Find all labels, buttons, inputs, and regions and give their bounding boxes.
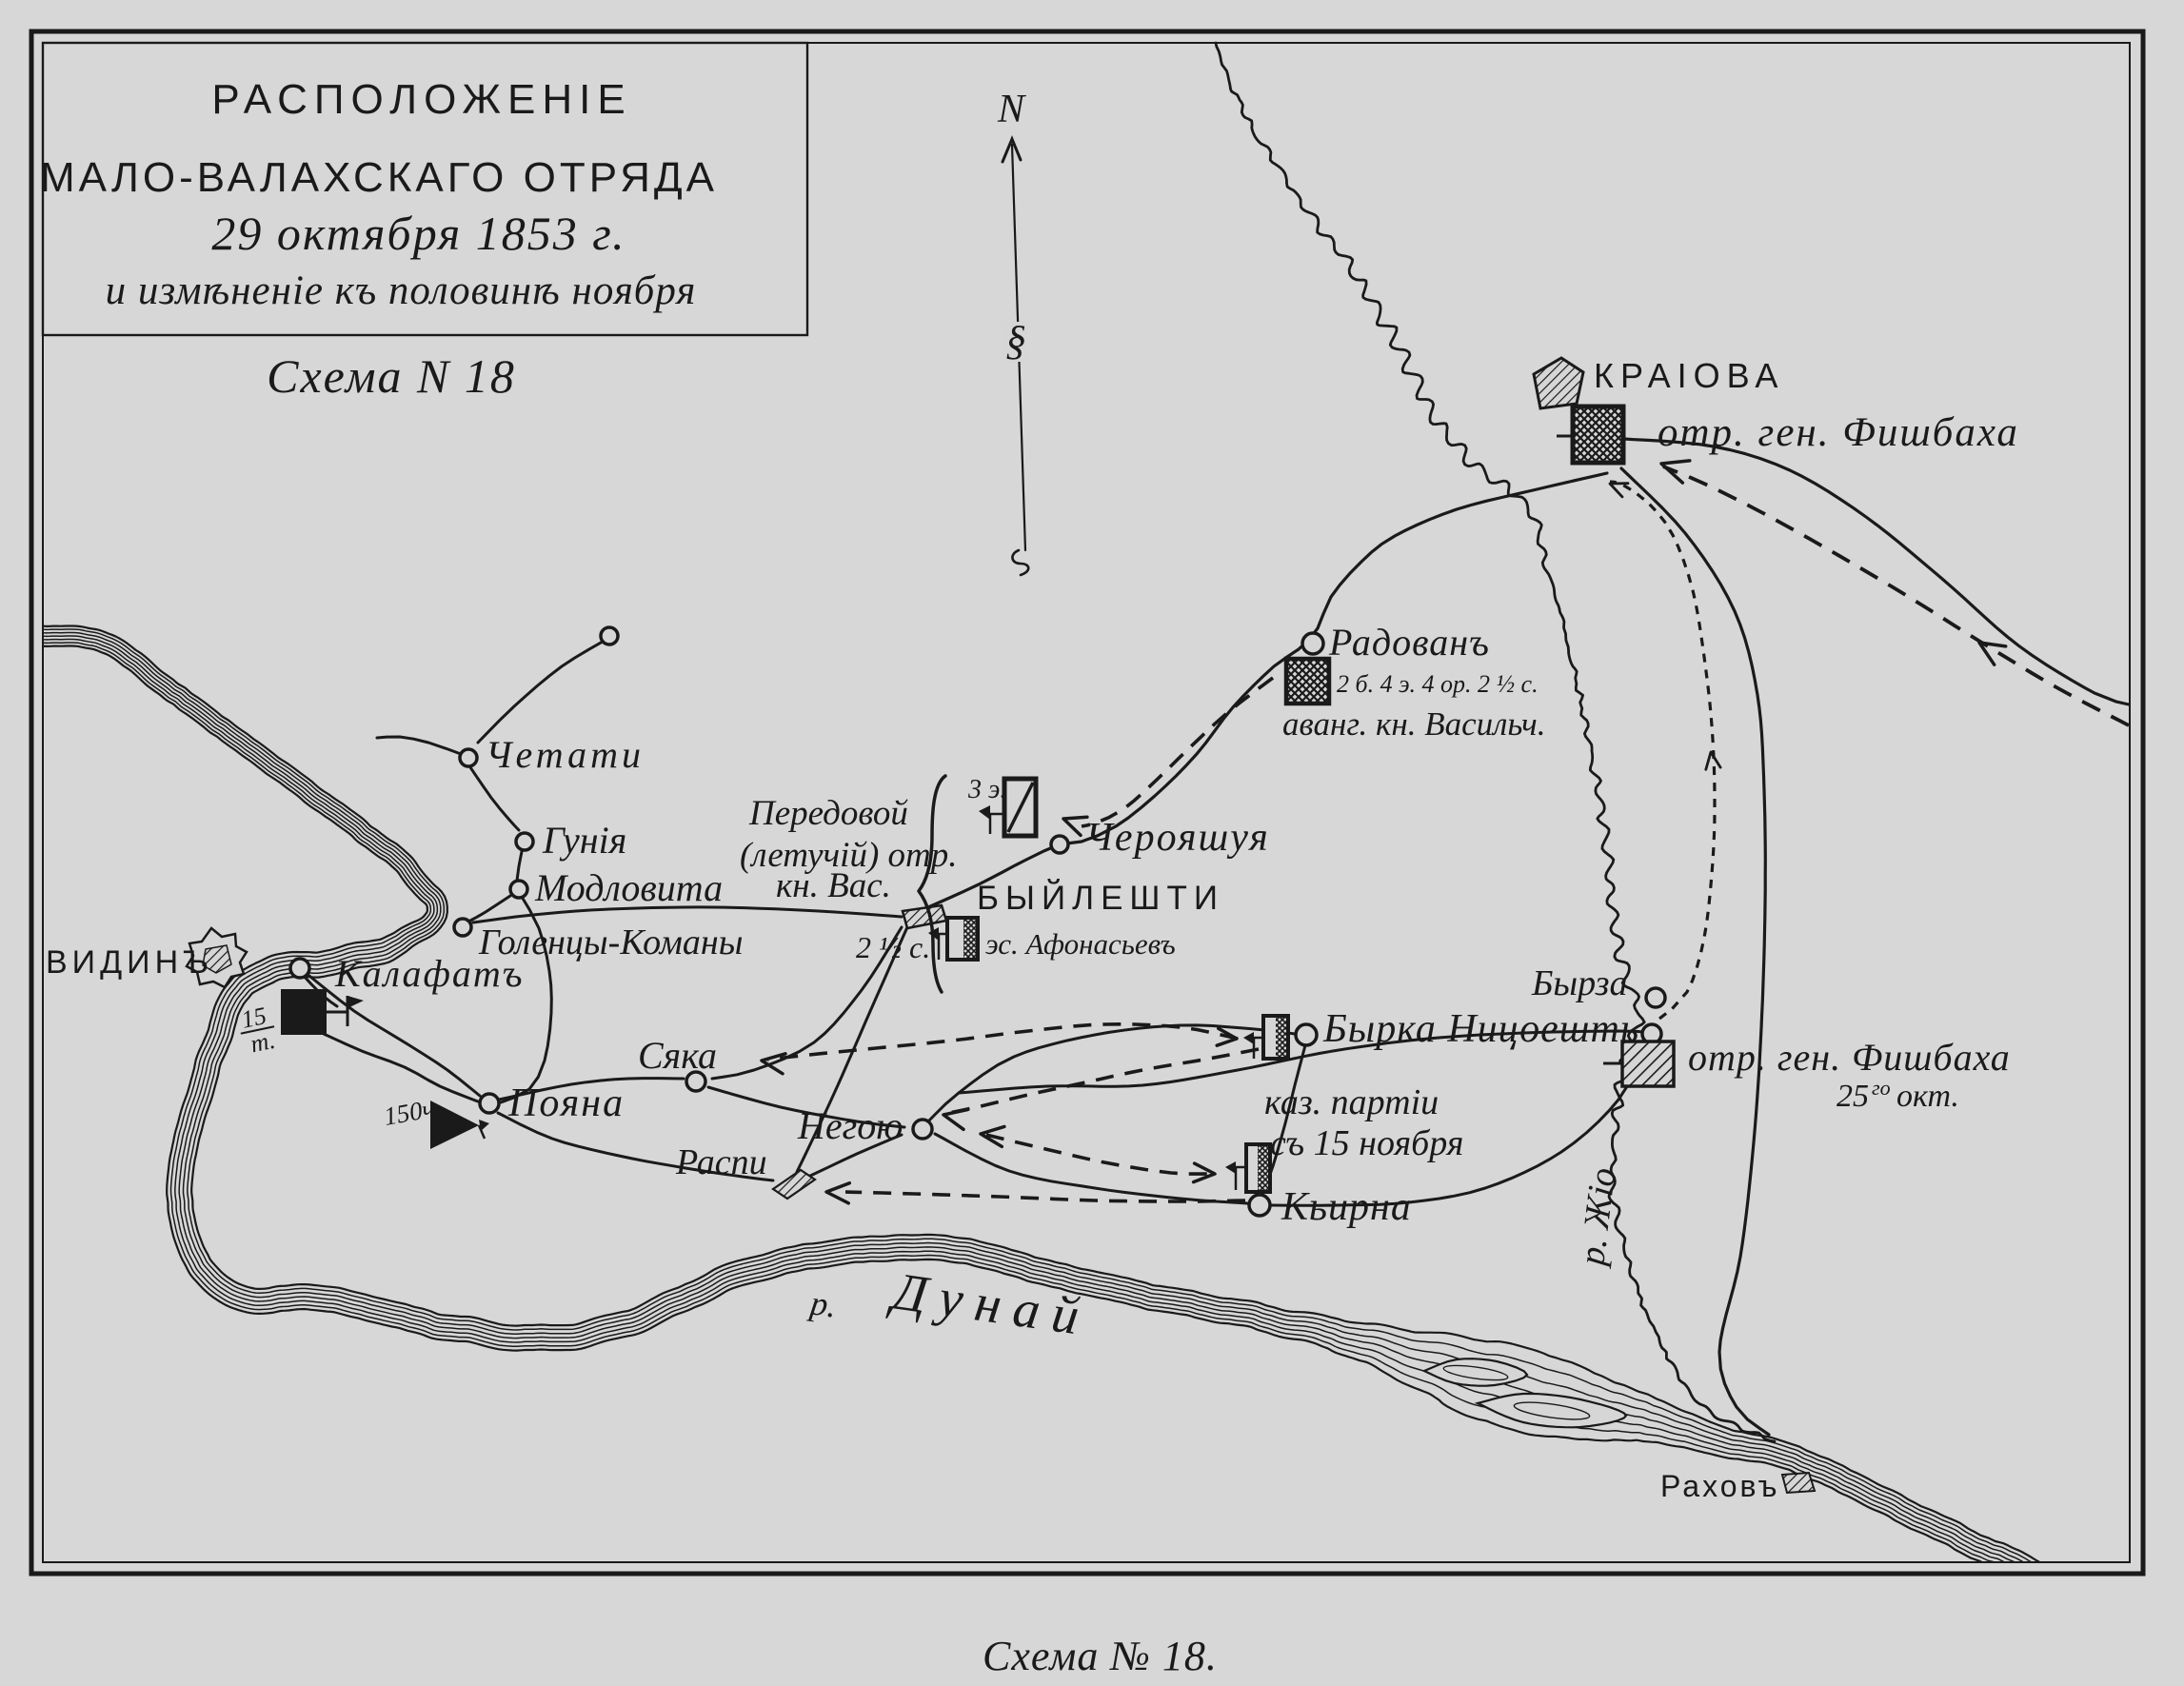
- svg-text:т.: т.: [248, 1026, 277, 1059]
- svg-text:кн. Вас.: кн. Вас.: [776, 866, 891, 905]
- svg-text:РАСПОЛОЖЕНIЕ: РАСПОЛОЖЕНIЕ: [211, 76, 631, 123]
- svg-text:2 б. 4 э. 4 ор. 2 ½ с.: 2 б. 4 э. 4 ор. 2 ½ с.: [1337, 670, 1539, 698]
- svg-text:аванг. кн. Васильч.: аванг. кн. Васильч.: [1282, 705, 1545, 743]
- svg-text:каз. партіи: каз. партіи: [1264, 1082, 1439, 1122]
- svg-text:Четати: Четати: [486, 733, 645, 776]
- svg-text:Гунія: Гунія: [542, 819, 626, 862]
- svg-text:Распи: Распи: [675, 1142, 767, 1182]
- svg-text:БЫЙЛЕШТИ: БЫЙЛЕШТИ: [977, 879, 1224, 917]
- svg-text:р.: р.: [805, 1283, 839, 1325]
- svg-text:го: го: [1872, 1076, 1891, 1100]
- svg-text:Схема № 18.: Схема № 18.: [983, 1633, 1218, 1679]
- svg-text:эс. Афонасьевъ: эс. Афонасьевъ: [985, 927, 1176, 961]
- svg-text:Раховъ: Раховъ: [1660, 1469, 1779, 1503]
- svg-text:р. Жіо: р. Жіо: [1572, 1165, 1624, 1270]
- svg-text:150ч: 150ч: [382, 1094, 437, 1131]
- svg-text:Кьирна: Кьирна: [1281, 1185, 1412, 1229]
- svg-text:N: N: [997, 88, 1026, 131]
- svg-text:Сяка: Сяка: [638, 1034, 717, 1077]
- svg-text:ВИДИНЪ: ВИДИНЪ: [46, 944, 213, 981]
- svg-text:25: 25: [1837, 1079, 1869, 1114]
- svg-text:Схема N 18: Схема N 18: [267, 349, 516, 403]
- svg-text:Негою: Негою: [797, 1104, 903, 1147]
- svg-text:Черояшуя: Черояшуя: [1085, 816, 1270, 860]
- svg-text:Модловита: Модловита: [534, 866, 723, 909]
- svg-text:Калафатъ: Калафатъ: [334, 952, 525, 995]
- svg-text:отр. ген. Фишбаха: отр. ген. Фишбаха: [1688, 1036, 2011, 1079]
- svg-text:§: §: [1005, 317, 1026, 364]
- svg-text:Пояна: Пояна: [507, 1081, 625, 1125]
- svg-text:Бырка Ницоешть: Бырка Ницоешть: [1322, 1007, 1639, 1051]
- svg-text:Дунай: Дунай: [884, 1261, 1095, 1348]
- svg-text:отр. ген. Фишбаха: отр. ген. Фишбаха: [1658, 410, 2019, 455]
- svg-text:3 э.: 3 э.: [967, 775, 1006, 804]
- svg-text:окт.: окт.: [1896, 1079, 1959, 1114]
- svg-text:2 ½ с.: 2 ½ с.: [856, 930, 930, 964]
- svg-text:Передовой: Передовой: [748, 794, 908, 833]
- svg-text:Бырза: Бырза: [1531, 963, 1627, 1003]
- svg-text:съ 15 ноября: съ 15 ноября: [1270, 1123, 1463, 1163]
- svg-text:Радованъ: Радованъ: [1328, 621, 1490, 664]
- svg-text:МАЛО-ВАЛАХСКАГО ОТРЯДА: МАЛО-ВАЛАХСКАГО ОТРЯДА: [40, 154, 718, 201]
- svg-text:и измѣненіе къ половинѣ ноября: и измѣненіе къ половинѣ ноября: [106, 268, 697, 313]
- svg-text:КРАIОВА: КРАIОВА: [1594, 356, 1784, 395]
- svg-text:29 октября 1853 г.: 29 октября 1853 г.: [211, 207, 625, 260]
